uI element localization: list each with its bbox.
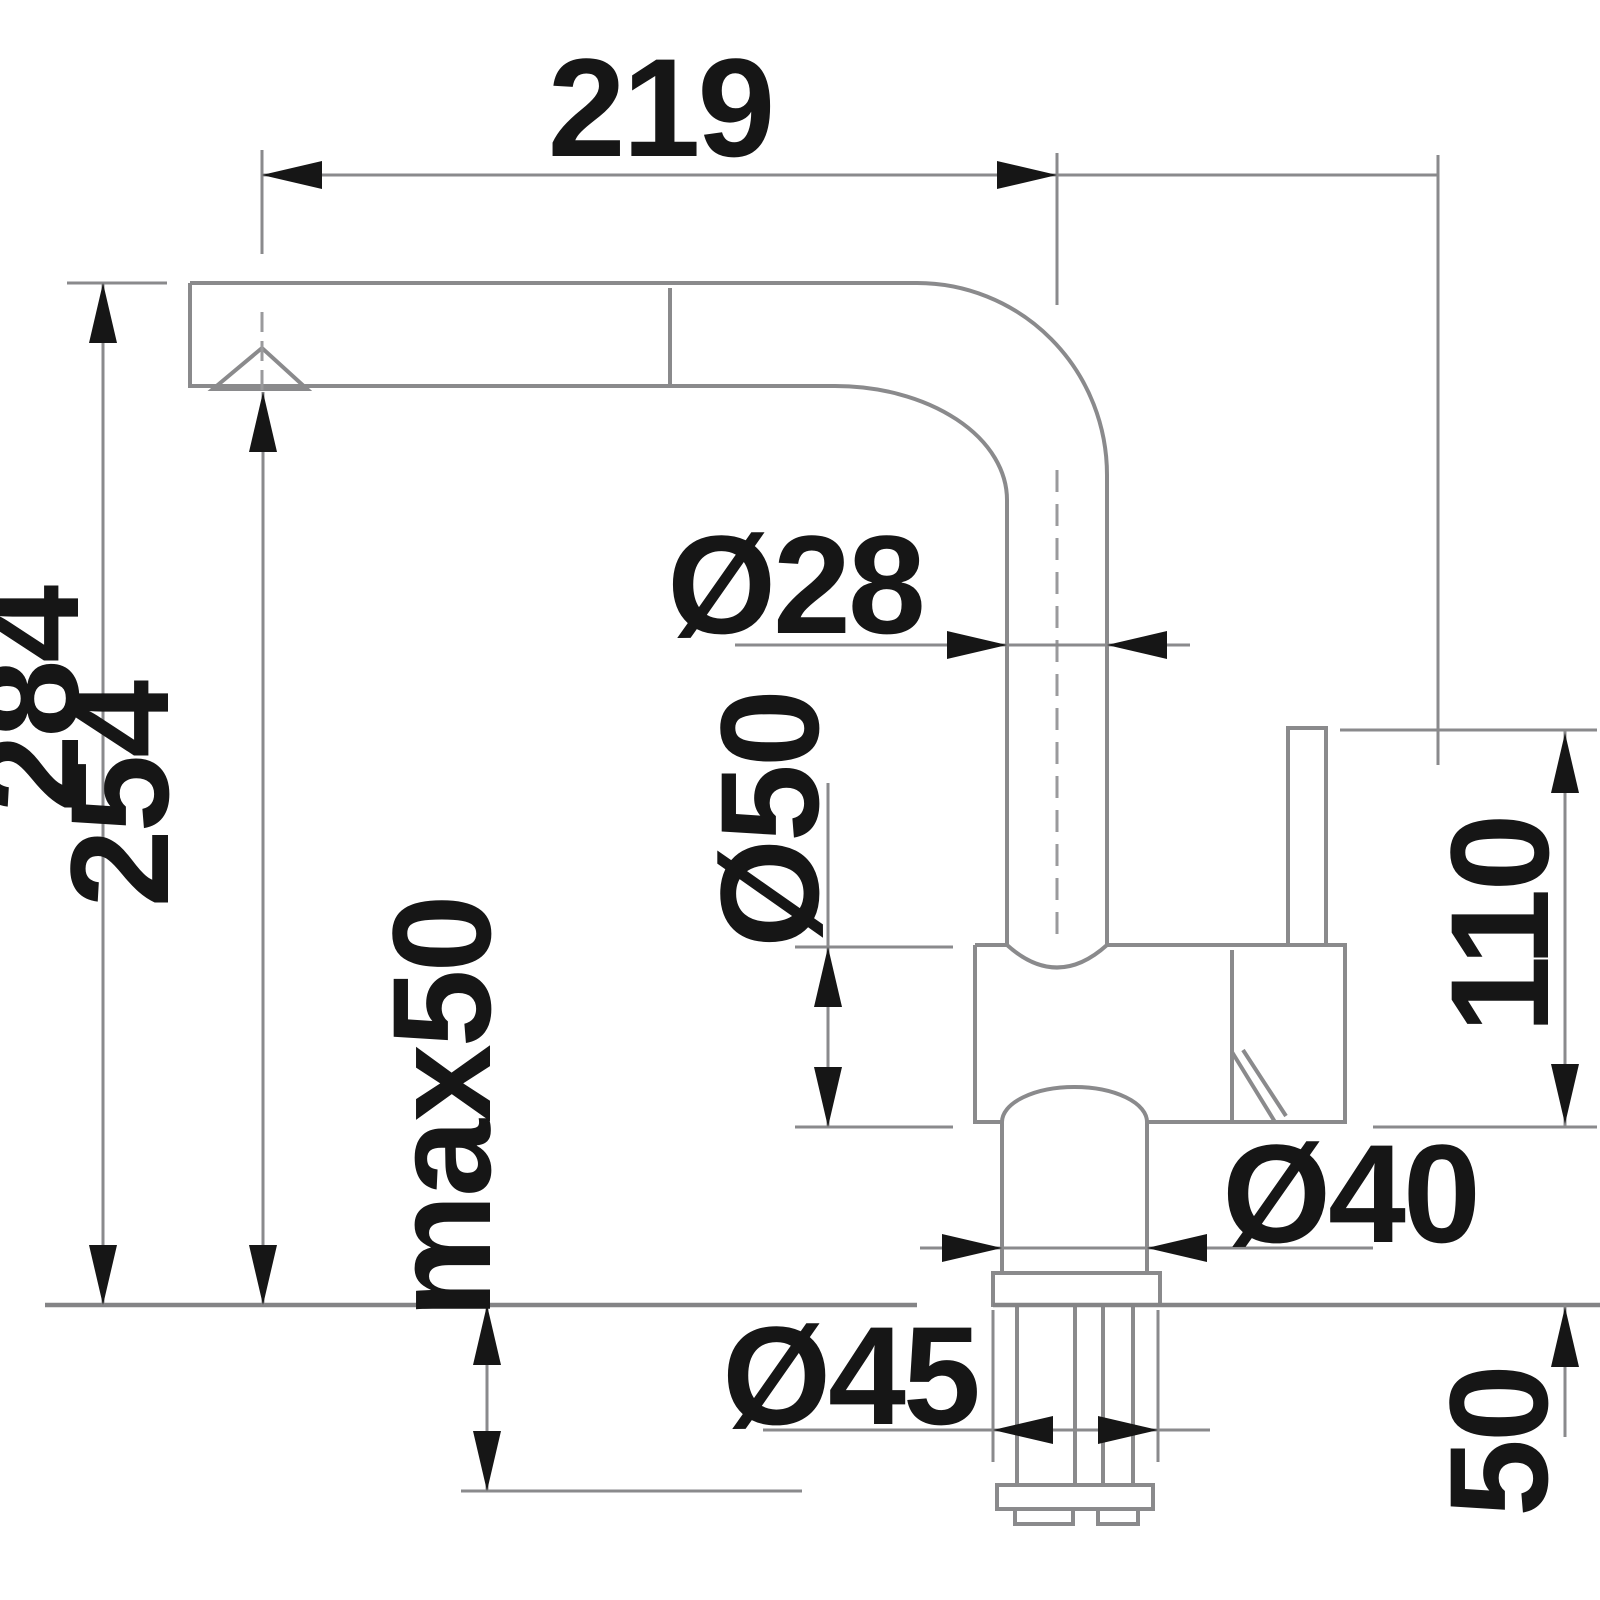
arrow-110-top <box>1551 733 1579 793</box>
spout-and-pipe-outline <box>190 283 1107 945</box>
arrow-d50-bottom <box>814 1067 842 1127</box>
arrow-d28-left <box>947 631 1007 659</box>
dim-label-max-mounting-thickness: max50 <box>363 898 520 1319</box>
dim-label-handle-height: 110 <box>1421 817 1578 1034</box>
arrow-d50-top <box>814 947 842 1007</box>
arrow-284-bottom <box>89 1245 117 1305</box>
arrow-max50-bottom <box>473 1431 501 1491</box>
arrow-d45-right <box>1098 1416 1158 1444</box>
aerator-triangle <box>213 348 307 389</box>
arrow-219-left <box>262 161 322 189</box>
dim-label-under-counter-length: 50 <box>1420 1367 1577 1517</box>
lever-diagonal-lines <box>1232 1050 1286 1122</box>
dimension-pipe-diameter: Ø28 <box>667 506 1190 663</box>
threaded-shank <box>1017 1305 1133 1485</box>
arrow-219-right <box>997 161 1057 189</box>
dim-label-base-diameter: Ø45 <box>722 1297 978 1454</box>
dim-label-spout-height: 254 <box>41 680 198 908</box>
body-bottom-dome <box>1002 1087 1147 1122</box>
dim-label-spout-reach: 219 <box>548 29 773 186</box>
dimension-handle-height: 110 <box>1340 730 1597 1127</box>
dim-label-neck-diameter: Ø40 <box>1222 1115 1478 1272</box>
arrow-50-top <box>1551 1307 1579 1367</box>
arrow-d28-right <box>1107 631 1167 659</box>
dim-label-pipe-diameter: Ø28 <box>667 506 923 663</box>
dim-label-body-diameter: Ø50 <box>691 692 848 948</box>
arrow-110-bottom <box>1551 1064 1579 1124</box>
arrow-254-bottom <box>249 1245 277 1305</box>
drawing-canvas: 219 284 254 max50 Ø28 Ø50 <box>0 0 1600 1600</box>
arrow-254-top <box>249 392 277 452</box>
shank-end-stubs <box>1015 1509 1138 1524</box>
arrow-d40-left <box>942 1234 1002 1262</box>
dimension-under-counter-length: 50 <box>1420 1305 1579 1517</box>
faucet-technical-drawing: 219 284 254 max50 Ø28 Ø50 <box>0 0 1600 1600</box>
mounting-nut <box>997 1485 1153 1509</box>
handle-rod <box>1288 728 1326 944</box>
mounting-flange <box>993 1273 1160 1305</box>
neck-walls <box>1002 1122 1147 1273</box>
arrow-d45-left <box>993 1416 1053 1444</box>
dimension-base-diameter: Ø45 <box>722 1297 1210 1462</box>
arrow-d40-right <box>1147 1234 1207 1262</box>
dimension-spout-height: 254 <box>41 392 277 1305</box>
dimension-body-diameter: Ø50 <box>691 692 953 1127</box>
arrow-284-top <box>89 283 117 343</box>
